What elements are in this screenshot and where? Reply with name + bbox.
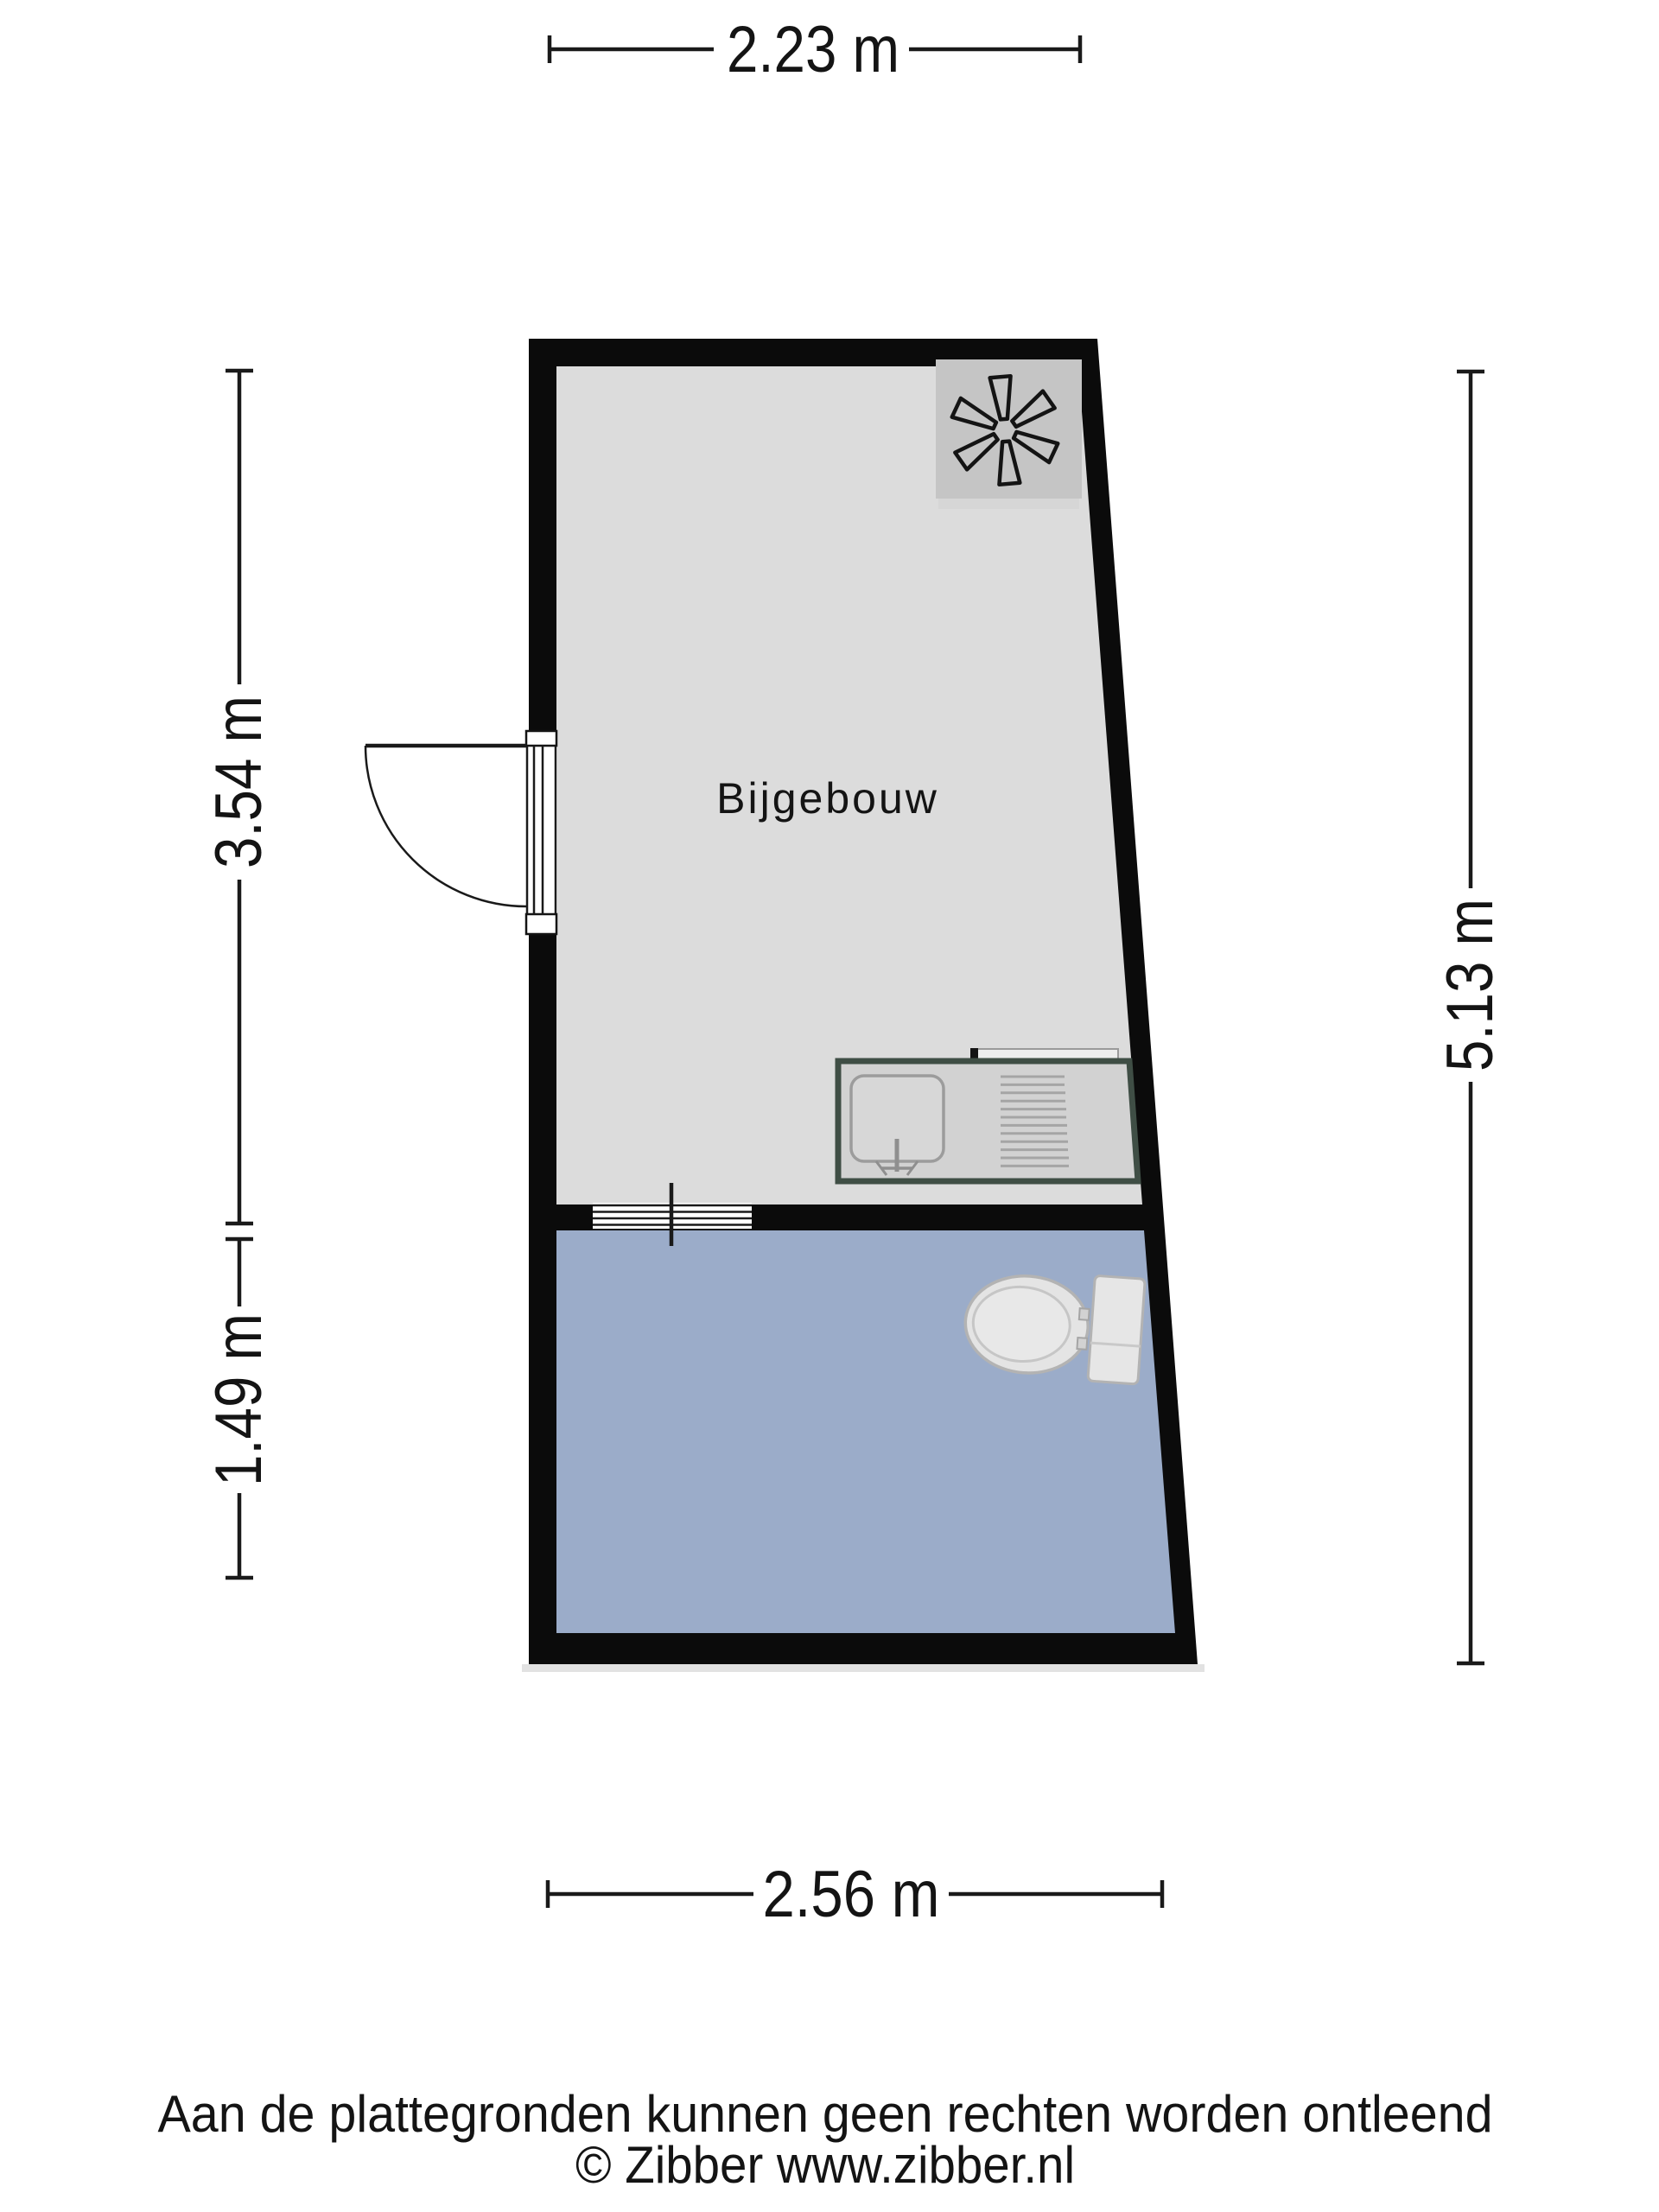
dimension-bottom: 2.56 m	[548, 1858, 1162, 1931]
toilet-tank	[1088, 1275, 1145, 1384]
sink-icon	[838, 1048, 1138, 1181]
dimension-right-label: 5.13 m	[1433, 899, 1507, 1071]
dimension-bottom-label: 2.56 m	[763, 1858, 940, 1931]
door-jamb-bottom	[526, 914, 556, 934]
door-opening	[525, 730, 557, 935]
dimension-top: 2.23 m	[550, 13, 1080, 86]
floorplan-canvas: Bijgebouw 2.23 m 3.54 m 1.49 m 5.13 m	[0, 0, 1659, 2212]
door-jamb-top	[526, 731, 556, 746]
room-label: Bijgebouw	[716, 774, 939, 823]
door-swing-arc	[365, 746, 526, 906]
toilet-hinge-top	[1079, 1308, 1090, 1320]
footer-disclaimer: Aan de plattegronden kunnen geen rechten…	[158, 2085, 1493, 2143]
floorplan-page: Bijgebouw 2.23 m 3.54 m 1.49 m 5.13 m	[0, 0, 1659, 2212]
room-bathroom-floor	[556, 1230, 1175, 1633]
dimension-right: 5.13 m	[1433, 372, 1507, 1663]
dimension-top-label: 2.23 m	[727, 13, 899, 86]
building	[522, 339, 1205, 1672]
door-swing-icon	[365, 730, 557, 935]
fan-box-lip	[938, 499, 1079, 509]
fan-icon	[936, 359, 1082, 509]
dimension-left-upper-label: 3.54 m	[202, 696, 276, 868]
dimension-left-lower: 1.49 m	[202, 1239, 276, 1578]
footer: Aan de plattegronden kunnen geen rechten…	[158, 2085, 1493, 2194]
building-shadow	[522, 1664, 1205, 1672]
dimension-left-lower-label: 1.49 m	[202, 1313, 276, 1486]
footer-copyright: © Zibber www.zibber.nl	[575, 2136, 1075, 2194]
dimension-left-upper: 3.54 m	[202, 371, 276, 1224]
toilet-hinge-bottom	[1077, 1338, 1087, 1350]
